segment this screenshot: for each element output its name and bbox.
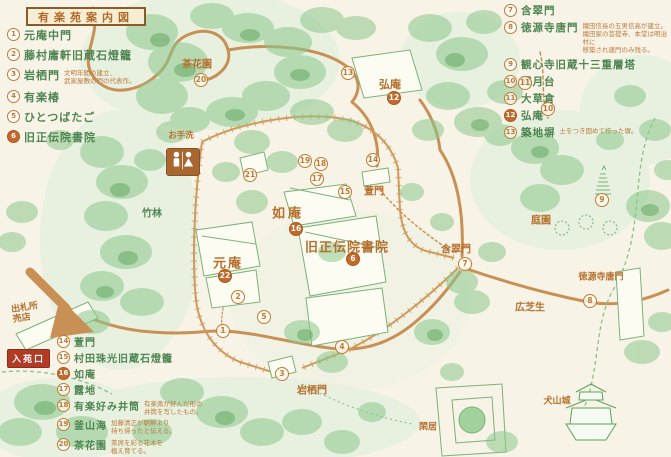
map-number-badge: 5 [257, 310, 271, 324]
map-number-badge: 3 [275, 367, 289, 381]
legend-item-16: 16如庵 [57, 366, 287, 381]
legend-bottom-left: 14萱門15村田珠光旧蔵石燈籠16如庵17露地18有楽好み井筒有楽斎が好んだ形の… [57, 334, 287, 457]
legend-item-label: 岩栖門 [24, 67, 60, 83]
legend-item-15: 15村田珠光旧蔵石燈籠 [57, 350, 287, 365]
legend-item-12: 12弘庵 [504, 108, 671, 123]
map-number-badge: 18 [314, 157, 328, 171]
map-number-badge: 17 [310, 172, 324, 186]
legend-item-note: 文明年間の建立、 武家屋敷の門の代表作。 [64, 69, 136, 85]
map-label: 含翠門 [441, 241, 471, 256]
legend-item-label: 築地塀 [521, 125, 556, 140]
legend-number-badge: 4 [7, 90, 20, 103]
map-number-badge: 2 [231, 290, 245, 304]
map-label: 竹林 [142, 205, 162, 220]
legend-item-note: 茶席を彩る花木を 植え育てる。 [111, 439, 163, 455]
legend-item-4: 4有楽椿 [7, 89, 217, 105]
legend-item-13: 13築地塀土をつき固めて作った塀。 [504, 125, 671, 140]
legend-number-badge: 12 [504, 109, 517, 122]
legend-item-7: 7含翠門 [504, 3, 671, 18]
map-number-badge: 14 [366, 153, 380, 167]
map-number-badge: 11 [518, 76, 532, 90]
legend-number-badge: 15 [57, 351, 70, 364]
entrance-badge: 入苑口 [7, 349, 50, 368]
legend-number-badge: 5 [7, 110, 20, 123]
legend-number-badge: 13 [504, 126, 517, 139]
map-number-badge: 16 [289, 222, 303, 236]
legend-item-note: 加藤清正が朝鮮より 持ち帰ったと伝える。 [111, 419, 176, 435]
map-number-badge: 15 [338, 185, 352, 199]
map-label: 旧正伝院書院 [305, 237, 389, 256]
legend-item-note: 土をつき固めて作った塀。 [560, 127, 638, 135]
map-number-badge: 20 [194, 73, 208, 87]
map-number-badge: 9 [595, 193, 609, 207]
ticket-office-label: 出札所 売店 [11, 301, 41, 326]
garden-map-page: 有楽苑案内図 1元庵中門2藤村庸軒旧蔵石燈籠3岩栖門文明年間の建立、 武家屋敷の… [0, 0, 671, 457]
map-label: 庭園 [531, 212, 551, 227]
legend-number-badge: 9 [504, 58, 517, 71]
legend-number-badge: 17 [57, 383, 70, 396]
map-label: 岩栖門 [297, 382, 327, 397]
map-number-badge: 4 [335, 340, 349, 354]
legend-item-17: 17露地 [57, 382, 287, 397]
legend-item-label: 露地 [74, 382, 96, 397]
legend-number-badge: 16 [57, 367, 70, 380]
map-number-badge: 22 [218, 269, 232, 283]
legend-number-badge: 14 [57, 335, 70, 348]
legend-number-badge: 3 [7, 68, 20, 81]
legend-item-19: 19釜山海加藤清正が朝鮮より 持ち帰ったと伝える。 [57, 417, 287, 435]
legend-item-label: ひとつばたご [24, 109, 95, 125]
legend-item-11: 11大草倉 [504, 91, 671, 106]
legend-item-label: 藤村庸軒旧蔵石燈籠 [24, 47, 132, 63]
legend-item-5: 5ひとつばたご [7, 109, 217, 125]
legend-number-badge: 10 [504, 75, 517, 88]
legend-number-badge: 19 [57, 418, 70, 431]
map-number-badge: 21 [243, 168, 257, 182]
map-label: 茶花園 [182, 56, 212, 71]
restroom-icon [166, 148, 200, 176]
map-number-badge: 7 [458, 257, 472, 271]
legend-item-9: 9観心寺旧蔵十三重層塔 [504, 57, 671, 72]
legend-number-badge: 7 [504, 4, 517, 17]
legend-item-note: 有楽斎が好んだ形の 井筒を写したもの。 [144, 400, 203, 416]
legend-item-label: 旧正伝院書院 [24, 129, 96, 145]
legend-item-label: 如庵 [74, 366, 96, 381]
map-label: 如庵 [272, 203, 304, 222]
legend-item-label: 有楽椿 [24, 89, 60, 105]
legend-item-label: 萱門 [74, 334, 96, 349]
map-number-badge: 12 [387, 91, 401, 105]
map-label: 弘庵 [379, 76, 401, 92]
map-label: 犬山城 [543, 394, 570, 407]
map-label: 閑居 [419, 420, 437, 433]
legend-item-1: 1元庵中門 [7, 27, 217, 43]
restroom-pictogram [167, 149, 197, 173]
legend-item-label: 有楽好み井筒 [74, 398, 140, 413]
legend-item-8: 8徳源寺唐門織田信長の五男信高が建立。 織田家の菩提寺、本堂は明治村に 移築され… [504, 20, 671, 55]
legend-item-label: 茶花園 [74, 437, 107, 452]
legend-number-badge: 20 [57, 438, 70, 451]
inuyama-castle-icon [566, 384, 616, 440]
legend-item-18: 18有楽好み井筒有楽斎が好んだ形の 井筒を写したもの。 [57, 398, 287, 416]
legend-item-label: 釜山海 [74, 417, 107, 432]
restroom-label: お手洗 [168, 129, 194, 141]
map-number-badge: 6 [346, 252, 360, 266]
legend-item-20: 20茶花園茶席を彩る花木を 植え育てる。 [57, 437, 287, 455]
legend-number-badge: 8 [504, 21, 517, 34]
legend-item-14: 14萱門 [57, 334, 287, 349]
map-number-badge: 1 [216, 324, 230, 338]
page-title: 有楽苑案内図 [26, 7, 146, 26]
legend-item-label: 元庵中門 [24, 27, 72, 43]
legend-number-badge: 2 [7, 48, 20, 61]
map-number-badge: 19 [298, 154, 312, 168]
legend-top-right: 7含翠門8徳源寺唐門織田信長の五男信高が建立。 織田家の菩提寺、本堂は明治村に … [504, 3, 671, 142]
map-number-badge: 8 [583, 294, 597, 308]
legend-item-label: 徳源寺唐門 [521, 20, 579, 35]
legend-item-label: 村田珠光旧蔵石燈籠 [74, 350, 173, 365]
legend-number-badge: 18 [57, 399, 70, 412]
legend-number-badge: 11 [504, 92, 517, 105]
map-label: 萱門 [364, 183, 384, 198]
map-label: 元庵 [213, 253, 243, 272]
map-number-badge: 10 [541, 102, 555, 116]
map-label: 広芝生 [515, 299, 545, 314]
legend-number-badge: 1 [7, 28, 20, 41]
legend-item-label: 含翠門 [521, 3, 556, 18]
legend-item-label: 観心寺旧蔵十三重層塔 [521, 57, 636, 72]
map-label: 徳源寺唐門 [578, 270, 623, 283]
map-number-badge: 13 [341, 66, 355, 80]
legend-item-note: 織田信長の五男信高が建立。 織田家の菩提寺、本堂は明治村に 移築され唐門のみ残る… [583, 22, 671, 55]
legend-number-badge: 6 [7, 130, 20, 143]
